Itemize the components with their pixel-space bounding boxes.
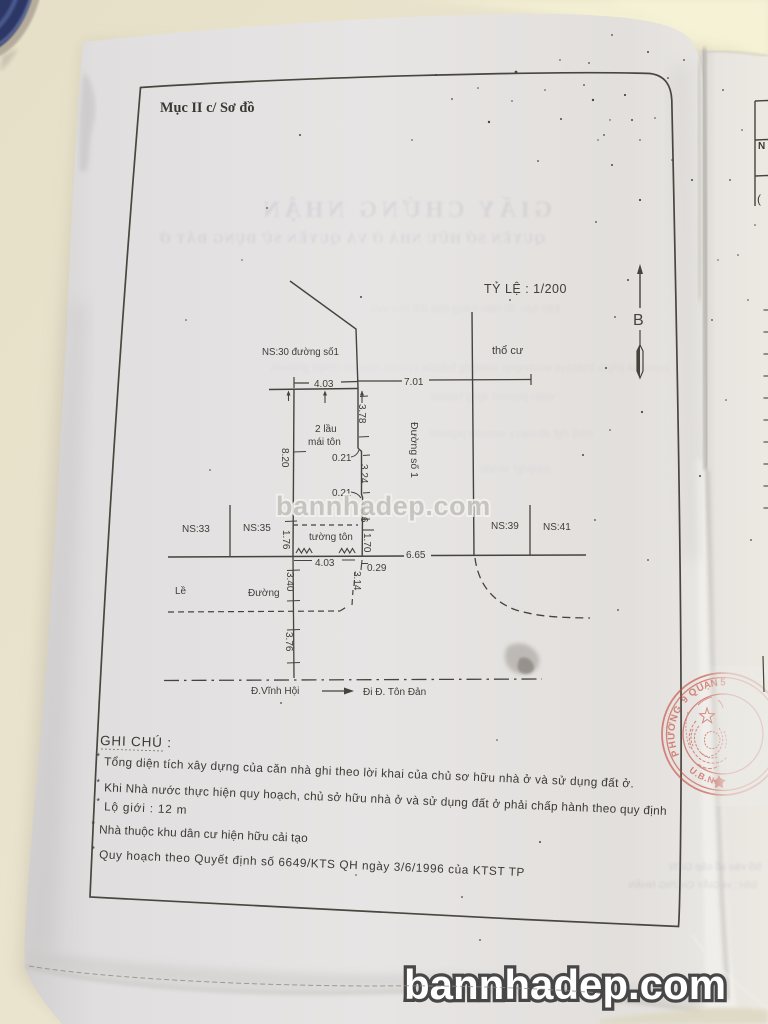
svg-text:thổ cư: thổ cư [492,345,524,357]
svg-text:8.20: 8.20 [279,448,290,468]
svg-text:trên bản đồ hiện trạng nhà đất: trên bản đồ hiện trạng nhà đất khu vực [370,303,560,315]
svg-text:Mục II c/ Sơ đồ: Mục II c/ Sơ đồ [160,100,255,116]
svg-text:4.03: 4.03 [314,379,334,390]
svg-text:1.70: 1.70 [361,533,372,553]
svg-text:TỶ LỆ : 1/200: TỶ LỆ : 1/200 [484,281,567,296]
svg-text:3.76: 3.76 [283,632,294,652]
svg-text:Đường số 1: Đường số 1 [408,422,420,478]
svg-text:NS:30 đường số1: NS:30 đường số1 [262,347,339,358]
svg-text:bannhadep.com: bannhadep.com [276,491,491,521]
svg-text:bannhadep.com: bannhadep.com [404,961,726,1008]
svg-text:Số vào sổ cấp GCN: Số vào sổ cấp GCN [669,861,762,873]
svg-text:QUYỀN SỞ HỮU NHÀ Ở VÀ QUYỀN SỬ: QUYỀN SỞ HỮU NHÀ Ở VÀ QUYỀN SỬ DỤNG ĐẤT … [159,231,545,246]
svg-text:2 lầu: 2 lầu [315,423,337,435]
svg-text:6.65: 6.65 [406,550,426,561]
svg-text:0.21: 0.21 [332,453,352,464]
svg-text:Đ.Vĩnh Hội: Đ.Vĩnh Hội [251,686,299,697]
svg-text:GHI CHÚ :: GHI CHÚ : [100,733,172,750]
svg-text:mái tôn: mái tôn [308,437,341,448]
svg-text:GIẤY CHỨNG NHẬN: GIẤY CHỨNG NHẬN [259,196,552,222]
svg-text:NS:35: NS:35 [243,523,271,534]
svg-text:NS:41: NS:41 [543,522,571,533]
svg-text:lmnopq rstuvwx yzabcde fgh ijk: lmnopq rstuvwx yzabcde fgh ijklm [430,428,594,440]
svg-text:1.76: 1.76 [280,530,291,550]
svg-text:abcdef ghijk lmnopq rstuv: abcdef ghijk lmnopq rstuv [430,391,555,403]
svg-text:Đi Đ. Tôn Đản: Đi Đ. Tôn Đản [363,687,426,698]
svg-text:NS:39: NS:39 [491,521,519,532]
svg-text:3.78: 3.78 [356,404,367,424]
svg-text:B: B [633,312,644,329]
svg-text:3.14: 3.14 [351,571,362,591]
svg-text:abcde fghijklm: abcde fghijklm [480,463,550,475]
svg-text:tường tôn: tường tôn [309,532,353,543]
svg-text:Đường: Đường [248,588,280,599]
svg-text:3.24: 3.24 [358,464,369,484]
svg-text:3.40: 3.40 [284,572,295,592]
svg-text:NS:33: NS:33 [182,524,210,535]
svg-text:abcdefg hijklm nopqrst uvwxyz: abcdefg hijklm nopqrst uvwxyz abcdef ghi… [270,362,669,374]
svg-text:Lề: Lề [175,585,187,597]
svg-text:SốH : xx GIẤY CHỨNG NHẬN: SốH : xx GIẤY CHỨNG NHẬN [629,880,758,891]
svg-text:0.29: 0.29 [367,563,387,574]
svg-text:7.01: 7.01 [404,377,424,388]
svg-text:4.03: 4.03 [315,558,335,569]
svg-text:N: N [758,141,765,152]
svg-text:(: ( [757,192,761,206]
